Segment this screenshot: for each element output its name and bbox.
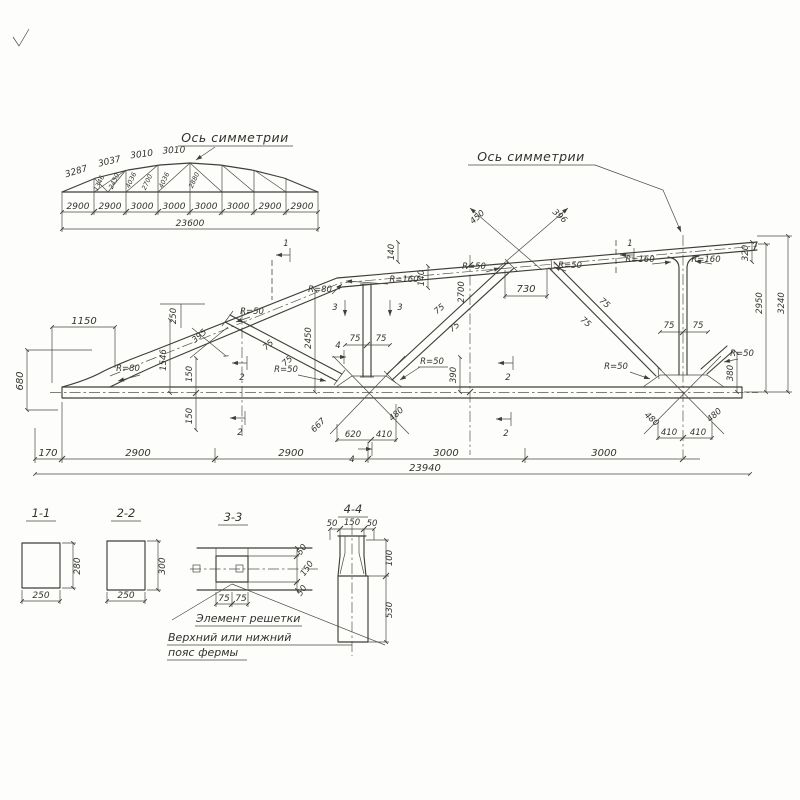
overview-panel-dim: 3000 xyxy=(163,202,186,212)
overview-panel-dim: 3000 xyxy=(131,202,154,212)
dim-75: 75 xyxy=(432,302,447,317)
radius-r80: R=80 xyxy=(116,364,140,374)
svg-text:2: 2 xyxy=(503,429,508,439)
radius-r80: R=80 xyxy=(308,285,332,295)
dim-250: 250 xyxy=(32,591,49,601)
radius-r50: R=50 xyxy=(730,349,754,359)
dim-140: 140 xyxy=(387,244,397,260)
scan-artifact xyxy=(13,29,29,46)
dim-667: 667 xyxy=(309,416,328,435)
dim-150: 150 xyxy=(185,366,195,382)
dim-410: 410 xyxy=(661,428,677,438)
overview-web-dim: 2700 xyxy=(140,173,154,191)
overview-chord-dim: 3010 xyxy=(130,149,154,162)
dim-75: 75 xyxy=(664,321,675,331)
dim-450: 450 xyxy=(468,208,487,226)
overview-chord-dim: 3037 xyxy=(97,155,122,170)
dim-75: 75 xyxy=(218,594,230,604)
overview-truss: 2900 2900 3000 3000 3000 3000 2900 2900 … xyxy=(62,130,318,232)
dim-75: 75 xyxy=(578,315,593,330)
main-symmetry-label: Ось симметрии xyxy=(477,149,585,164)
note-chord-line2: пояс фермы xyxy=(168,646,239,659)
dim-380: 380 xyxy=(726,365,736,381)
overview-chord-dim: 3287 xyxy=(64,164,89,180)
radius-r160: R=160 xyxy=(691,255,720,265)
overview-web-dim: 1346 xyxy=(92,174,106,192)
overview-total-dim: 23600 xyxy=(176,219,205,229)
dim-3240: 3240 xyxy=(777,292,787,314)
truss-drawing-sheet: 2900 2900 3000 3000 3000 3000 2900 2900 … xyxy=(0,0,800,800)
svg-text:3: 3 xyxy=(397,303,402,313)
dim-300: 300 xyxy=(158,557,168,574)
dim-75: 75 xyxy=(235,594,247,604)
svg-text:2: 2 xyxy=(237,428,242,438)
dim-2900: 2900 xyxy=(278,448,303,459)
svg-text:2: 2 xyxy=(239,373,244,383)
section-title: 4-4 xyxy=(344,502,363,516)
section-cut-shape xyxy=(107,541,145,590)
overview-panel-dim: 2900 xyxy=(291,202,314,212)
dim-150: 150 xyxy=(344,518,360,528)
dim-250: 250 xyxy=(169,308,179,324)
dim-680: 680 xyxy=(15,371,26,390)
dim-3000: 3000 xyxy=(591,448,616,459)
section-mark-3: 3 3 xyxy=(332,300,402,316)
dim-320: 320 xyxy=(741,245,751,261)
dim-390: 390 xyxy=(449,367,459,383)
dim-280: 280 xyxy=(73,557,83,574)
svg-text:1: 1 xyxy=(283,239,288,249)
overview-web-dim: 4036 xyxy=(157,171,171,189)
section-mark-1: 1 xyxy=(272,239,290,300)
dim-250: 250 xyxy=(117,591,134,601)
section-2-2: 2-2 250 300 xyxy=(107,506,168,604)
dim-75: 75 xyxy=(597,296,612,311)
dim-3000: 3000 xyxy=(433,448,458,459)
section-mark-4: 4 4 xyxy=(332,341,372,465)
band-mid-marker xyxy=(236,565,243,572)
svg-text:4: 4 xyxy=(349,455,354,465)
dim-480: 480 xyxy=(705,406,724,424)
dim-530: 530 xyxy=(385,602,395,618)
svg-text:3: 3 xyxy=(332,303,337,313)
dim-50: 50 xyxy=(367,519,378,529)
overview-panel-dim: 2900 xyxy=(99,202,122,212)
note-lattice-element: Элемент решетки xyxy=(195,612,300,625)
dim-75: 75 xyxy=(693,321,704,331)
dim-total: 23940 xyxy=(409,463,441,474)
note-chord-line1: Верхний или нижний xyxy=(168,631,291,644)
overview-web-dim: 2880 xyxy=(187,171,201,189)
svg-text:2: 2 xyxy=(505,373,510,383)
section-title: 3-3 xyxy=(224,510,243,524)
dim-1546: 1546 xyxy=(159,349,169,371)
dim-2900: 2900 xyxy=(125,448,150,459)
dim-410: 410 xyxy=(690,428,706,438)
dim-1150: 1150 xyxy=(71,316,96,327)
overview-panel-dim: 3000 xyxy=(227,202,250,212)
svg-text:4: 4 xyxy=(335,341,340,351)
dim-730: 730 xyxy=(516,284,535,295)
dim-2700: 2700 xyxy=(457,281,467,303)
radius-r160: R=160 xyxy=(625,255,654,265)
dim-620: 620 xyxy=(345,430,361,440)
section-1-1: 1-1 250 280 xyxy=(22,506,83,604)
dim-396: 396 xyxy=(550,207,569,226)
radius-r160: R=160 xyxy=(389,275,418,285)
radius-r50: R=50 xyxy=(604,362,628,372)
overview-chord-dim: 3010 xyxy=(162,145,186,156)
section-title: 2-2 xyxy=(117,506,136,520)
overview-panel-dim: 2900 xyxy=(259,202,282,212)
dim-170: 170 xyxy=(38,448,57,459)
drawing-canvas: 2900 2900 3000 3000 3000 3000 2900 2900 … xyxy=(0,0,800,800)
band-end-marker xyxy=(193,565,200,572)
section-4-4: 4-4 50 150 50 100 530 xyxy=(327,502,395,656)
svg-text:1: 1 xyxy=(627,239,632,249)
radius-r50: R=50 xyxy=(462,262,486,272)
dim-150: 150 xyxy=(185,408,195,424)
dim-480: 480 xyxy=(387,405,406,423)
dim-75: 75 xyxy=(350,334,361,344)
dim-140: 140 xyxy=(417,270,427,286)
section-cut-shape xyxy=(22,543,60,588)
dim-2950: 2950 xyxy=(755,292,765,314)
dim-410: 410 xyxy=(376,430,392,440)
dim-75: 75 xyxy=(447,320,462,335)
section-title: 1-1 xyxy=(32,506,51,520)
overview-symmetry-label: Ось симметрии xyxy=(181,130,289,145)
dim-100: 100 xyxy=(385,550,395,566)
radius-r50: R=50 xyxy=(240,307,264,317)
main-truss: Ось симметрии 1150 680 170 2900 2900 300… xyxy=(15,149,792,474)
dim-2450: 2450 xyxy=(304,327,314,349)
dim-50: 50 xyxy=(327,519,338,529)
radius-r50: R=50 xyxy=(420,357,444,367)
overview-panel-dim: 2900 xyxy=(67,202,90,212)
dim-75: 75 xyxy=(261,338,276,353)
overview-panel-dim: 3000 xyxy=(195,202,218,212)
dim-75: 75 xyxy=(376,334,387,344)
